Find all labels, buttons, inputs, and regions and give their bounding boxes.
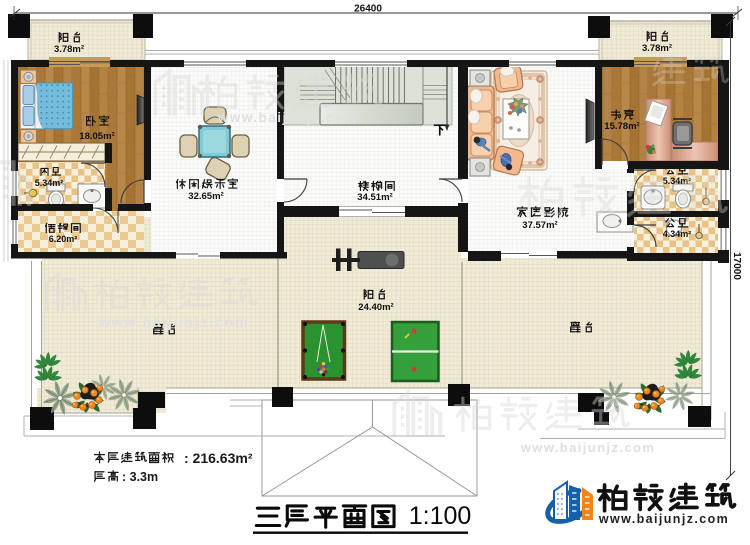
svg-text:24.40m²: 24.40m² (358, 302, 393, 313)
svg-text:www.baijunjz.com: www.baijunjz.com (217, 110, 359, 125)
svg-text:6.20m²: 6.20m² (49, 234, 78, 244)
svg-text:www.baijunjz.com: www.baijunjz.com (98, 315, 250, 331)
svg-text:32.65m²: 32.65m² (188, 191, 223, 202)
svg-text:18.05m²: 18.05m² (79, 131, 114, 142)
svg-text:3.78m²: 3.78m² (642, 43, 672, 54)
svg-text:26400: 26400 (354, 4, 382, 15)
svg-text:www.baijunjz.com: www.baijunjz.com (520, 440, 656, 455)
svg-text:: 216.63m²: : 216.63m² (184, 450, 253, 466)
svg-text:: 3.3m: : 3.3m (122, 470, 158, 484)
svg-text:37.57m²: 37.57m² (522, 220, 557, 231)
svg-text:5.34m²: 5.34m² (35, 178, 64, 188)
svg-text:1:100: 1:100 (409, 502, 472, 530)
svg-text:www.baijunjz.com: www.baijunjz.com (598, 512, 729, 526)
svg-text:4.34m²: 4.34m² (663, 229, 692, 239)
svg-text:15.78m²: 15.78m² (604, 121, 639, 132)
svg-text:3.78m²: 3.78m² (54, 44, 84, 55)
svg-text:34.51m²: 34.51m² (357, 192, 392, 203)
svg-text:17000: 17000 (731, 252, 742, 280)
